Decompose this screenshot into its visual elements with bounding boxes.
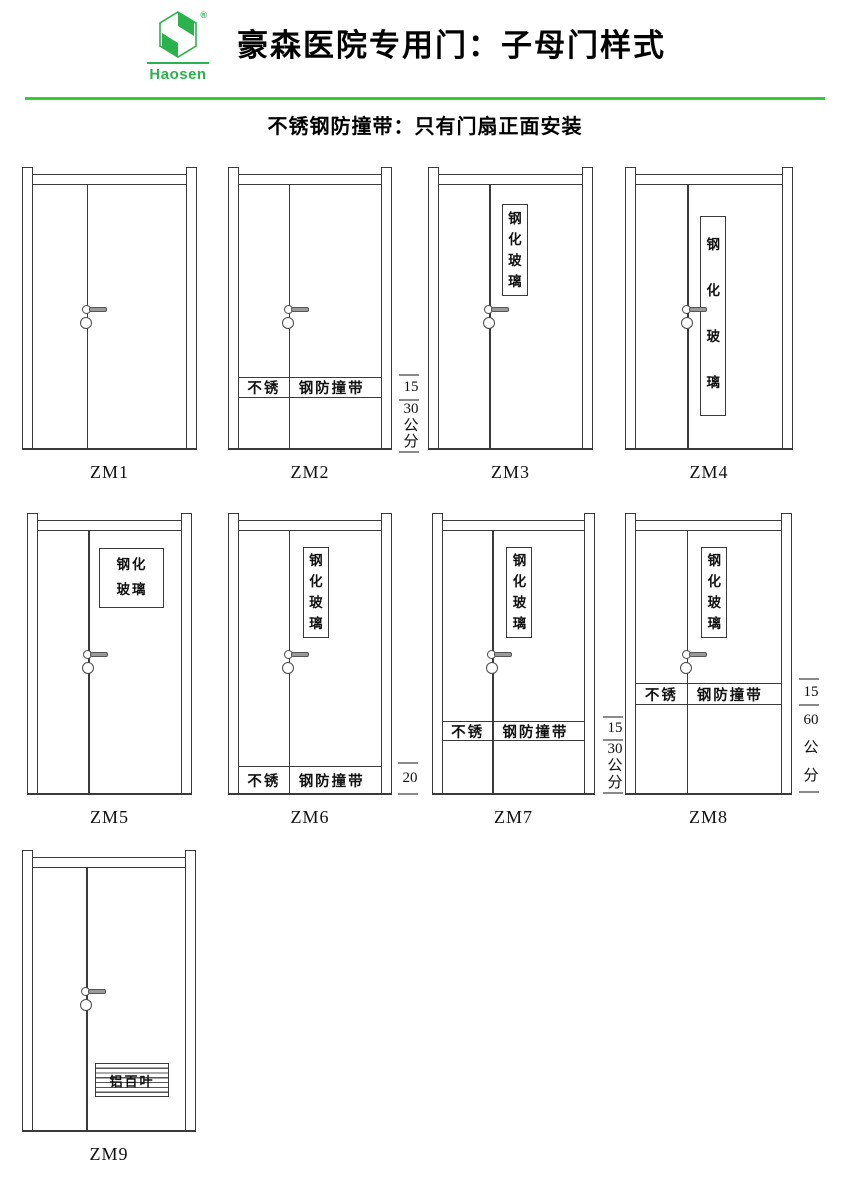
handle-lever (90, 652, 108, 657)
door-handle-icon (81, 987, 111, 1013)
door-code-label: ZM1 (22, 462, 197, 483)
dim-band-height: 20 (398, 764, 422, 793)
door-leaves: 钢化玻璃 (38, 531, 181, 793)
threshold-line (228, 448, 392, 450)
door-jamb-left (22, 850, 33, 1131)
handle-lever (291, 652, 309, 657)
door-leaves: 钢化玻璃 不锈 钢防撞带 (239, 531, 381, 793)
dimension-annotation-zm7: 15 30公分 (603, 716, 627, 794)
door-jamb-right (186, 167, 197, 449)
door-head-rail (442, 520, 585, 531)
threshold-line (432, 793, 595, 795)
dim-tick (398, 793, 418, 795)
lock-cylinder (486, 662, 498, 674)
threshold-line (22, 1130, 196, 1132)
dim-band-height: 15 (799, 680, 823, 704)
band-label-left: 不锈 (239, 377, 289, 398)
door-code-label: ZM8 (625, 807, 792, 828)
page-subtitle: 不锈钢防撞带：只有门扇正面安装 (0, 110, 850, 139)
door-diagram-zm4: 钢化玻璃 ZM4 (625, 167, 793, 450)
door-jamb-left (228, 167, 239, 449)
door-leaves: 铝百叶 (33, 868, 185, 1130)
door-diagram-zm5: 钢化玻璃 ZM5 (27, 513, 192, 795)
glass-window-label: 钢化玻璃 (115, 552, 149, 602)
threshold-line (625, 793, 792, 795)
door-jamb-left (228, 513, 239, 794)
lock-cylinder (282, 317, 294, 329)
threshold-line (428, 448, 593, 450)
glass-window: 钢化玻璃 (506, 547, 532, 638)
glass-window: 钢化玻璃 (99, 548, 164, 608)
threshold-line (27, 793, 192, 795)
door-code-label: ZM9 (22, 1144, 196, 1165)
brand-logo: ® Haosen (146, 11, 210, 83)
stainless-kick-band: 不锈 钢防撞带 (239, 377, 381, 398)
door-jamb-right (582, 167, 593, 449)
door-handle-icon (682, 650, 712, 676)
door-code-label: ZM6 (228, 807, 392, 828)
door-head-rail (635, 520, 782, 531)
door-leaves: 钢化玻璃 (636, 185, 782, 448)
band-label-left: 不锈 (443, 721, 492, 742)
registered-trademark: ® (200, 10, 207, 20)
door-jamb-right (381, 513, 392, 794)
glass-window-label: 钢化玻璃 (512, 550, 527, 634)
dim-band-height: 15 (399, 376, 423, 399)
door-leaves: 钢化玻璃 (439, 185, 582, 448)
handle-lever (89, 307, 107, 312)
handle-lever (689, 652, 707, 657)
handle-lever (689, 307, 707, 312)
dim-tick (799, 791, 819, 793)
door-code-label: ZM7 (432, 807, 595, 828)
door-leaves (33, 185, 186, 448)
aluminum-louver: 铝百叶 (95, 1063, 169, 1097)
dim-tick (399, 451, 419, 453)
door-diagram-zm6: 钢化玻璃 不锈 钢防撞带 ZM6 (228, 513, 392, 795)
door-code-label: ZM2 (228, 462, 392, 483)
dim-bottom-offset: 30公分 (399, 401, 423, 451)
glass-window: 钢化玻璃 (502, 204, 528, 296)
stainless-kick-band: 不锈 钢防撞带 (239, 766, 381, 794)
door-jamb-right (782, 167, 793, 449)
door-handle-icon (484, 305, 514, 331)
page-canvas: ® Haosen 豪森医院专用门：子母门样式 不锈钢防撞带：只有门扇正面安装 Z… (0, 0, 850, 1202)
green-divider-line (25, 97, 825, 100)
door-head-rail (37, 520, 182, 531)
door-diagram-zm9: 铝百叶 ZM9 (22, 850, 196, 1132)
door-handle-icon (284, 650, 314, 676)
door-head-rail (238, 520, 382, 531)
glass-window: 钢化玻璃 (701, 547, 727, 638)
door-diagram-zm7: 钢化玻璃 不锈 钢防撞带 ZM7 (432, 513, 595, 795)
door-head-rail (438, 174, 583, 185)
door-jamb-right (381, 167, 392, 449)
stainless-kick-band: 不锈 钢防撞带 (443, 721, 584, 741)
door-handle-icon (82, 305, 112, 331)
door-diagram-zm8: 钢化玻璃 不锈 钢防撞带 ZM8 (625, 513, 792, 795)
lock-cylinder (483, 317, 495, 329)
lock-cylinder (680, 662, 692, 674)
lock-cylinder (82, 662, 94, 674)
glass-window: 钢化玻璃 (303, 547, 329, 638)
lock-cylinder (80, 999, 92, 1011)
dim-bottom-offset: 60公分 (799, 706, 823, 791)
door-handle-icon (487, 650, 517, 676)
lock-cylinder (282, 662, 294, 674)
haosen-logo-icon (156, 11, 200, 59)
band-label-left: 不锈 (636, 684, 687, 705)
dim-tick (603, 792, 623, 794)
band-label-left: 不锈 (239, 770, 289, 791)
door-jamb-left (27, 513, 38, 794)
louver-label: 铝百叶 (109, 1071, 154, 1090)
threshold-line (22, 448, 197, 450)
door-head-rail (635, 174, 783, 185)
door-diagram-zm1: ZM1 (22, 167, 197, 450)
threshold-line (625, 448, 793, 450)
door-jamb-left (428, 167, 439, 449)
glass-window-label: 钢化玻璃 (308, 550, 323, 634)
handle-lever (88, 989, 106, 994)
dim-band-height: 15 (603, 718, 627, 739)
handle-lever (291, 307, 309, 312)
page-title: 豪森医院专用门：子母门样式 (237, 20, 666, 65)
lock-cylinder (681, 317, 693, 329)
dimension-annotation-zm6: 20 (398, 762, 422, 795)
door-code-label: ZM4 (625, 462, 793, 483)
logo-underline (147, 62, 209, 64)
door-handle-icon (83, 650, 113, 676)
door-jamb-right (584, 513, 595, 794)
dimension-annotation-zm2: 15 30公分 (399, 374, 423, 453)
glass-window-label: 钢化玻璃 (507, 208, 522, 292)
handle-lever (494, 652, 512, 657)
door-head-rail (32, 857, 186, 868)
door-leaves: 不锈 钢防撞带 (239, 185, 381, 448)
door-head-rail (32, 174, 187, 185)
brand-name: Haosen (146, 66, 210, 83)
lock-cylinder (80, 317, 92, 329)
door-jamb-left (432, 513, 443, 794)
door-handle-icon (284, 305, 314, 331)
door-diagram-zm2: 不锈 钢防撞带 ZM2 (228, 167, 392, 450)
door-leaves: 钢化玻璃 不锈 钢防撞带 (636, 531, 781, 793)
threshold-line (228, 793, 392, 795)
band-label-right: 钢防撞带 (687, 684, 781, 705)
band-label-right: 钢防撞带 (289, 377, 381, 398)
door-diagram-zm3: 钢化玻璃 ZM3 (428, 167, 593, 450)
handle-lever (491, 307, 509, 312)
glass-window-label: 钢化玻璃 (707, 550, 722, 634)
door-jamb-left (625, 167, 636, 449)
door-jamb-right (185, 850, 196, 1131)
door-head-rail (238, 174, 382, 185)
band-label-right: 钢防撞带 (289, 770, 381, 791)
door-jamb-right (181, 513, 192, 794)
band-label-right: 钢防撞带 (492, 721, 584, 742)
stainless-kick-band: 不锈 钢防撞带 (636, 683, 781, 705)
door-jamb-right (781, 513, 792, 794)
door-leaves: 钢化玻璃 不锈 钢防撞带 (443, 531, 584, 793)
door-code-label: ZM3 (428, 462, 593, 483)
door-handle-icon (682, 305, 712, 331)
door-code-label: ZM5 (27, 807, 192, 828)
dimension-annotation-zm8: 15 60公分 (799, 678, 823, 793)
door-jamb-left (22, 167, 33, 449)
dim-bottom-offset: 30公分 (603, 741, 627, 792)
